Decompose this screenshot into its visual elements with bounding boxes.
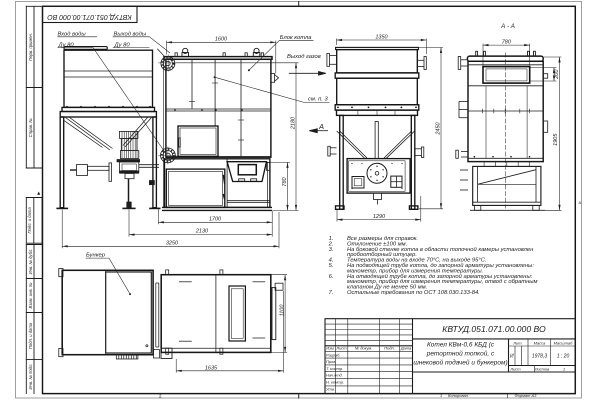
svg-text:Подп. и дата: Подп. и дата — [28, 322, 33, 349]
svg-text:200: 200 — [554, 69, 560, 80]
svg-text:Дата: Дата — [400, 346, 412, 351]
svg-text:Н. контр.: Н. контр. — [326, 379, 344, 384]
svg-text:Бункер: Бункер — [86, 253, 106, 259]
svg-text:Остальные требования по ОСТ 10: Остальные требования по ОСТ 108.030.133-… — [347, 290, 480, 296]
svg-text:Подп. и дата: Подп. и дата — [27, 207, 32, 234]
svg-text:Утв.: Утв. — [326, 386, 335, 391]
svg-text:Перв. примен.: Перв. примен. — [28, 33, 33, 61]
svg-text:Масса: Масса — [534, 340, 547, 345]
svg-text:6.: 6. — [329, 274, 334, 280]
svg-text:2130: 2130 — [195, 229, 209, 235]
svg-text:5.: 5. — [329, 263, 334, 269]
svg-text:Т. контр.: Т. контр. — [326, 366, 343, 371]
svg-text:Листов: Листов — [534, 367, 550, 372]
svg-text:1100: 1100 — [279, 304, 285, 317]
svg-text:Формат А3: Формат А3 — [515, 393, 538, 398]
svg-text:Вход воды: Вход воды — [58, 32, 87, 38]
svg-text:Выход воды: Выход воды — [114, 32, 147, 38]
svg-text:1290: 1290 — [373, 214, 386, 220]
svg-text:3.: 3. — [329, 247, 334, 253]
svg-text:Масштаб: Масштаб — [554, 340, 573, 345]
svg-text:Инв. № подл.: Инв. № подл. — [28, 364, 33, 390]
svg-text:1600: 1600 — [215, 37, 228, 43]
svg-text:3250: 3250 — [166, 240, 179, 246]
svg-text:КВТУД.051.071.00.000 ВО: КВТУД.051.071.00.000 ВО — [47, 13, 132, 20]
svg-text:7.: 7. — [329, 290, 334, 296]
svg-text:Копировал: Копировал — [448, 393, 469, 398]
svg-text:см. п. 3: см. п. 3 — [308, 97, 329, 103]
svg-text:А - А: А - А — [500, 23, 515, 30]
svg-text:Нач.отд.: Нач.отд. — [326, 373, 343, 378]
svg-text:1700: 1700 — [209, 216, 222, 222]
svg-text:А: А — [579, 200, 582, 205]
svg-text:Выход газов: Выход газов — [287, 54, 321, 60]
svg-text:2180: 2180 — [291, 116, 297, 130]
svg-text:1: 1 — [563, 367, 565, 372]
svg-text:780: 780 — [502, 40, 512, 46]
svg-text:Пров.: Пров. — [326, 359, 337, 364]
svg-text:1905: 1905 — [553, 133, 559, 146]
svg-text:А: А — [318, 122, 324, 131]
svg-text:Лист: Лист — [509, 367, 521, 372]
svg-text:Изм: Изм — [326, 346, 334, 351]
svg-text:Взам. инв. №: Взам. инв. № — [28, 282, 33, 308]
svg-text:шнековой подачей и бункером): шнековой подачей и бункером) — [413, 359, 507, 367]
svg-text:1: 1 — [440, 393, 442, 398]
svg-text:ретортной топкой, с: ретортной топкой, с — [426, 350, 495, 358]
svg-text:Ду 80: Ду 80 — [114, 42, 131, 48]
svg-text:Котел КВм-0,6 КБД (с: Котел КВм-0,6 КБД (с — [427, 342, 495, 349]
svg-text:Лист: Лист — [335, 346, 347, 351]
svg-text:1 : 20: 1 : 20 — [557, 354, 570, 360]
svg-text:Блок котла: Блок котла — [280, 35, 313, 41]
svg-text:1635: 1635 — [205, 365, 218, 371]
svg-text:И: И — [510, 354, 514, 360]
svg-text:Разраб.: Разраб. — [326, 352, 340, 357]
svg-text:Подп.: Подп. — [384, 346, 395, 351]
svg-text:№ докум.: № докум. — [355, 346, 373, 351]
svg-text:780: 780 — [282, 176, 288, 186]
svg-text:1978,3: 1978,3 — [532, 354, 548, 360]
svg-text:КВТУД.051.071.00.000 ВО: КВТУД.051.071.00.000 ВО — [442, 324, 546, 334]
svg-text:2450: 2450 — [436, 121, 442, 135]
svg-text:Инв. № дубл.: Инв. № дубл. — [28, 249, 33, 275]
svg-text:Лит.: Лит. — [512, 340, 522, 345]
svg-text:Справ. №: Справ. № — [28, 118, 33, 137]
svg-text:Ду 80: Ду 80 — [58, 42, 75, 48]
svg-text:1350: 1350 — [375, 35, 388, 41]
